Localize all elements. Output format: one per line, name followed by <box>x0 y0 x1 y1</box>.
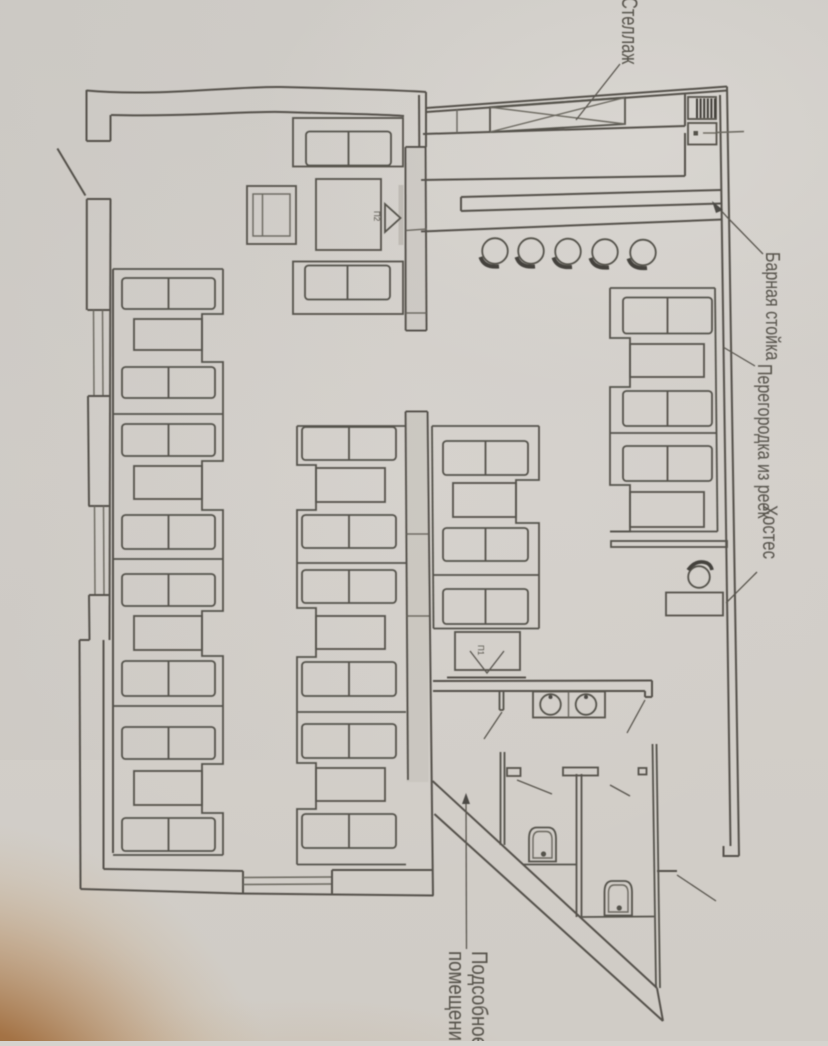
svg-text:Барная стойка: Барная стойка <box>762 252 784 361</box>
svg-text:Хостес: Хостес <box>757 505 780 559</box>
svg-text:Подсобное: Подсобное <box>467 951 491 1041</box>
svg-text:П2: П2 <box>372 211 381 222</box>
svg-text:помещение: помещение <box>444 951 468 1041</box>
svg-text:Стеллаж: Стеллаж <box>616 0 641 64</box>
svg-text:П1: П1 <box>476 645 485 656</box>
svg-text:Перегородка из реек: Перегородка из реек <box>754 364 776 519</box>
